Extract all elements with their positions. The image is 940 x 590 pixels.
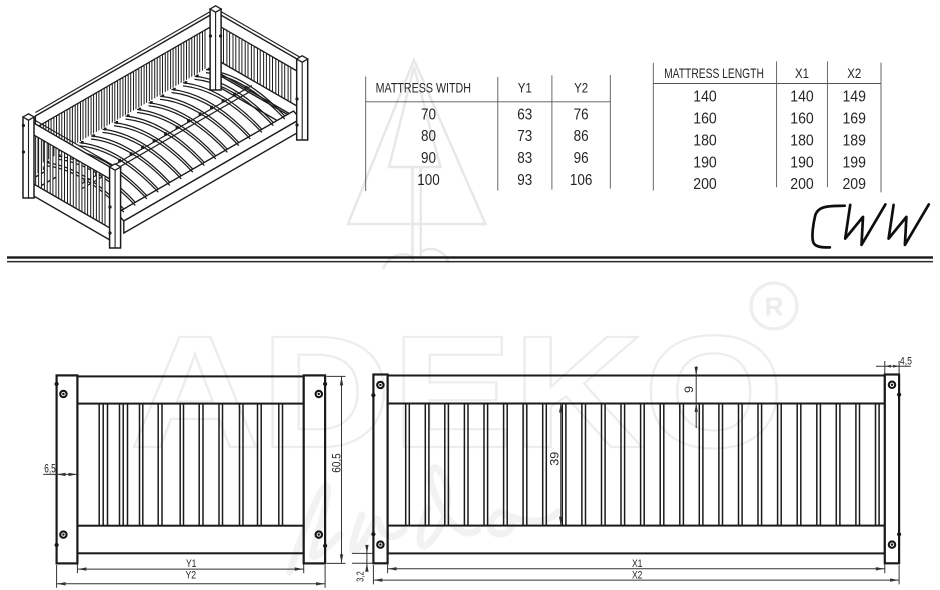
svg-text:96: 96 [574,150,589,167]
svg-text:93: 93 [517,172,532,189]
svg-text:200: 200 [693,176,717,193]
svg-text:190: 190 [693,154,717,171]
svg-text:73: 73 [517,128,532,145]
svg-text:X1: X1 [632,558,643,570]
svg-text:83: 83 [517,150,532,167]
svg-text:180: 180 [790,133,814,150]
svg-text:X2: X2 [632,569,643,581]
svg-text:180: 180 [693,133,717,150]
svg-text:4,5: 4,5 [900,355,912,367]
svg-text:MATTRESS LENGTH: MATTRESS LENGTH [664,66,764,81]
svg-text:ADEKO: ADEKO [130,302,785,481]
svg-text:Y1: Y1 [186,558,197,570]
svg-text:199: 199 [842,154,866,171]
svg-text:X1: X1 [795,66,809,81]
svg-text:Y2: Y2 [186,570,197,582]
svg-text:63: 63 [517,106,532,123]
svg-text:X2: X2 [847,66,861,81]
svg-text:6,5: 6,5 [44,464,56,476]
svg-text:Y1: Y1 [518,80,532,95]
svg-text:160: 160 [693,111,717,128]
svg-text:209: 209 [842,176,866,193]
svg-text:106: 106 [570,172,593,189]
svg-text:190: 190 [790,154,814,171]
svg-text:140: 140 [693,89,717,106]
svg-text:140: 140 [790,89,814,106]
svg-text:3,2: 3,2 [355,571,367,582]
svg-text:149: 149 [842,89,866,106]
svg-text:86: 86 [574,128,589,145]
svg-text:76: 76 [574,106,589,123]
svg-text:169: 169 [842,111,866,128]
svg-text:90: 90 [421,150,436,167]
svg-text:Y2: Y2 [574,80,588,95]
svg-text:R: R [765,292,784,322]
svg-text:189: 189 [842,133,866,150]
svg-text:200: 200 [790,176,814,193]
svg-text:160: 160 [790,111,814,128]
